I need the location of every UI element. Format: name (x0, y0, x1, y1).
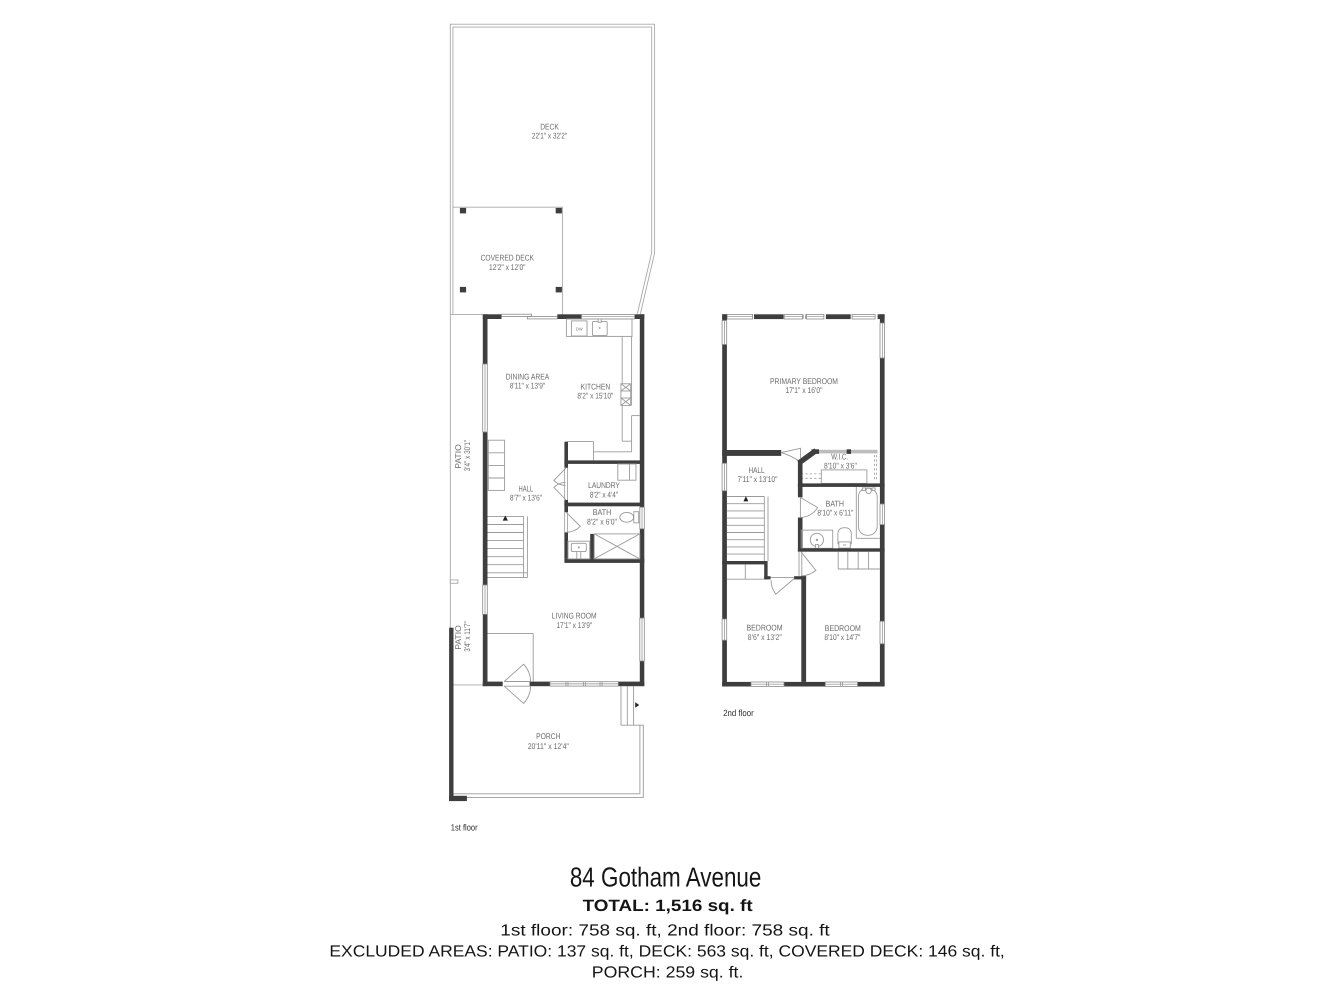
svg-text:3'4" x 30'1": 3'4" x 30'1" (462, 440, 472, 472)
svg-text:3'4" x 11'7": 3'4" x 11'7" (462, 621, 472, 652)
svg-text:TOTAL: 1,516 sq. ft: TOTAL: 1,516 sq. ft (583, 897, 754, 915)
svg-text:1st floor: 758 sq. ft, 2nd flo: 1st floor: 758 sq. ft, 2nd floor: 758 sq… (500, 922, 830, 940)
svg-text:8'10" x 3'6": 8'10" x 3'6" (824, 461, 857, 471)
svg-text:8'11" x 13'9": 8'11" x 13'9" (510, 381, 546, 391)
svg-text:PORCH: 259 sq. ft.: PORCH: 259 sq. ft. (592, 964, 744, 982)
svg-text:12'2" x 12'0": 12'2" x 12'0" (489, 262, 526, 272)
svg-text:22'1" x 32'2": 22'1" x 32'2" (532, 131, 567, 141)
svg-text:PORCH: PORCH (536, 731, 560, 741)
svg-text:LAUNDRY: LAUNDRY (588, 480, 620, 490)
svg-text:8'2" x 6'0": 8'2" x 6'0" (587, 517, 617, 527)
svg-text:8'6" x 13'2": 8'6" x 13'2" (748, 632, 782, 642)
svg-text:8'10" x 14'7": 8'10" x 14'7" (824, 632, 860, 642)
svg-text:7'11" x 13'10": 7'11" x 13'10" (738, 474, 778, 484)
svg-text:BATH: BATH (593, 507, 612, 517)
svg-text:8'2" x 15'10": 8'2" x 15'10" (577, 391, 613, 401)
svg-text:DW: DW (576, 327, 583, 332)
svg-text:8'10" x 6'11": 8'10" x 6'11" (817, 508, 853, 518)
svg-text:8'2" x 4'4": 8'2" x 4'4" (590, 490, 618, 500)
svg-text:8'7" x 13'6": 8'7" x 13'6" (510, 492, 542, 502)
svg-text:84 Gotham Avenue: 84 Gotham Avenue (570, 861, 762, 892)
svg-text:20'11" x 12'4": 20'11" x 12'4" (528, 741, 569, 751)
svg-text:2nd floor: 2nd floor (723, 708, 754, 718)
svg-text:1st floor: 1st floor (451, 822, 478, 832)
svg-text:EXCLUDED AREAS: PATIO: 137 sq.: EXCLUDED AREAS: PATIO: 137 sq. ft, DECK:… (329, 943, 1004, 961)
svg-text:17'1" x 13'9": 17'1" x 13'9" (556, 620, 592, 630)
svg-text:17'1" x 16'0": 17'1" x 16'0" (786, 385, 823, 395)
